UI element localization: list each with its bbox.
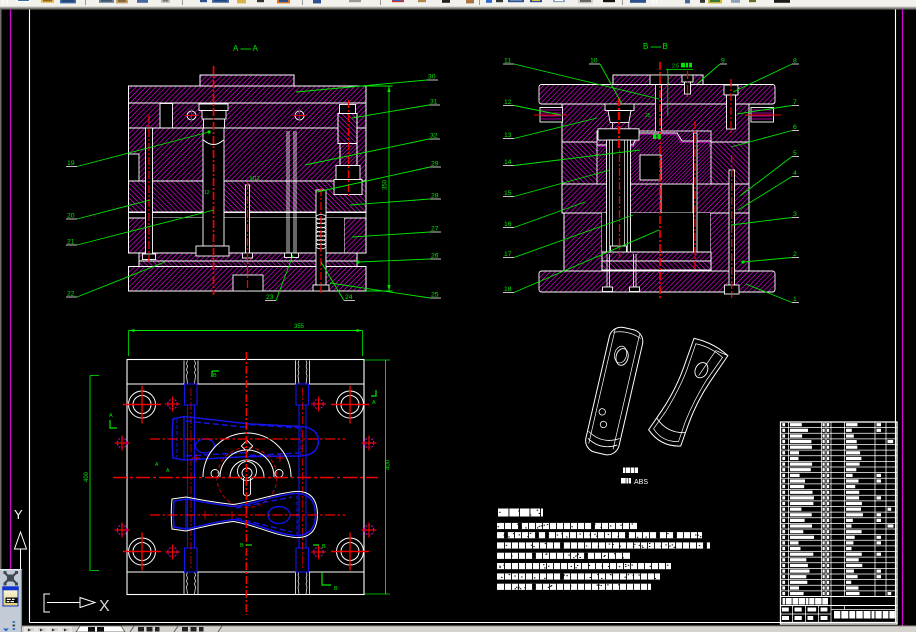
- svg-text:19: 19: [67, 160, 75, 167]
- svg-text:M12: M12: [250, 176, 260, 182]
- svg-text:B: B: [643, 42, 648, 51]
- svg-text:1: 1: [793, 296, 797, 303]
- svg-text:ABS: ABS: [634, 479, 648, 486]
- svg-text:24: 24: [345, 294, 353, 301]
- svg-text:16: 16: [504, 221, 512, 228]
- svg-text:2.5: 2.5: [672, 64, 679, 70]
- svg-text:17: 17: [504, 251, 512, 258]
- svg-text:20: 20: [67, 213, 75, 220]
- svg-text:B: B: [213, 373, 217, 379]
- svg-text:14: 14: [504, 159, 512, 166]
- svg-text:A: A: [253, 44, 259, 53]
- svg-text:8: 8: [793, 58, 797, 65]
- svg-text:28: 28: [431, 193, 439, 200]
- svg-text:400: 400: [386, 459, 392, 470]
- svg-text:B: B: [240, 543, 244, 549]
- svg-text:A: A: [372, 400, 376, 406]
- svg-text:355: 355: [294, 324, 305, 330]
- svg-text:12: 12: [504, 99, 512, 106]
- svg-text:2: 2: [793, 251, 797, 258]
- svg-text:31: 31: [430, 99, 438, 106]
- svg-text:25: 25: [645, 113, 651, 119]
- svg-text:3: 3: [793, 211, 797, 218]
- svg-text:18: 18: [504, 286, 512, 293]
- svg-text:9: 9: [721, 58, 725, 65]
- svg-text:6: 6: [793, 124, 797, 131]
- svg-text:21: 21: [67, 239, 75, 246]
- svg-text:10: 10: [590, 58, 598, 65]
- svg-text:15: 15: [504, 190, 512, 197]
- svg-text:A: A: [233, 44, 239, 53]
- svg-text:32: 32: [430, 133, 438, 140]
- svg-text:11: 11: [504, 58, 511, 65]
- svg-text:13: 13: [504, 132, 512, 139]
- svg-text:23: 23: [266, 294, 274, 301]
- svg-text:350: 350: [383, 179, 389, 190]
- svg-text:29: 29: [431, 161, 439, 168]
- svg-text:B: B: [663, 42, 668, 51]
- svg-text:5: 5: [793, 150, 797, 157]
- svg-text:27: 27: [431, 226, 439, 233]
- svg-text:B: B: [322, 544, 326, 550]
- svg-text:22: 22: [67, 291, 75, 298]
- svg-text:B: B: [334, 586, 338, 592]
- svg-text:7: 7: [793, 99, 797, 106]
- svg-text:X: X: [99, 598, 110, 615]
- svg-text:A: A: [109, 413, 113, 419]
- svg-text:400: 400: [84, 471, 90, 482]
- svg-text:12: 12: [204, 190, 210, 196]
- svg-text:25: 25: [431, 292, 439, 299]
- svg-text:26: 26: [431, 253, 439, 260]
- svg-text:30: 30: [428, 74, 436, 81]
- svg-text:4: 4: [793, 170, 797, 177]
- svg-text:Y: Y: [14, 507, 23, 522]
